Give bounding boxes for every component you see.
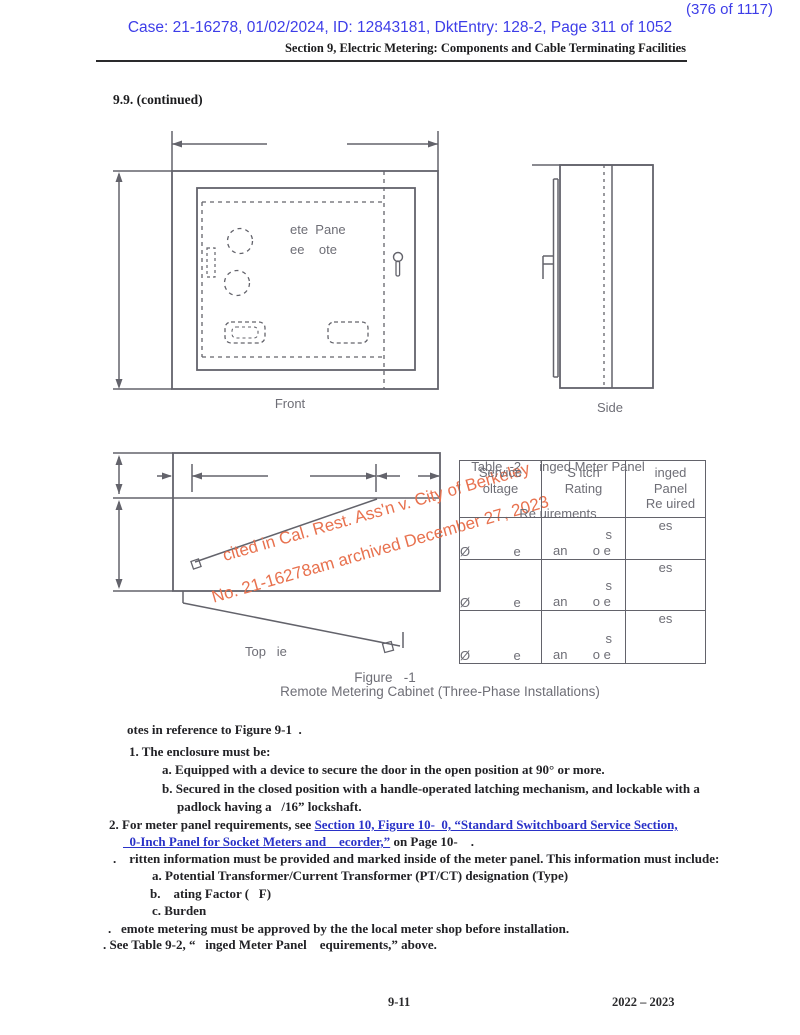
- cell-service-voltage: Ø e: [460, 518, 542, 560]
- note-2: 2. For meter panel requirements, see Sec…: [109, 817, 678, 833]
- cell-switch-rating: s an o e: [542, 518, 626, 560]
- note-4: . emote metering must be approved by the…: [108, 921, 569, 937]
- page-count-stamp: (376 of 1117): [686, 1, 773, 18]
- figure-number: Figure -1: [300, 670, 470, 685]
- table-row: Ø e s an o e es: [460, 611, 706, 664]
- switch-line2: an o e: [542, 647, 625, 663]
- table-header-row: Service oltage S itch Rating inged Panel…: [460, 461, 706, 518]
- figure-caption: Remote Metering Cabinet (Three-Phase Ins…: [180, 684, 700, 699]
- note-3c: c. Burden: [152, 903, 206, 919]
- note-1b-continued: padlock having a /16” lockshaft.: [177, 799, 362, 815]
- section-heading: 9.9. (continued): [113, 92, 203, 108]
- header-rule: [96, 60, 687, 62]
- panel-text-line1: ete Pane: [290, 222, 346, 237]
- header-switch-rating: S itch Rating: [542, 461, 626, 518]
- table-row: Ø e s an o e es: [460, 560, 706, 611]
- switch-line1: s: [542, 527, 625, 543]
- hinged-meter-panel-table: Service oltage S itch Rating inged Panel…: [459, 460, 706, 664]
- note-2-continued: 0-Inch Panel for Socket Meters and ecord…: [123, 834, 474, 850]
- side-view-label: Side: [585, 400, 635, 415]
- document-page: (376 of 1117) Case: 21-16278, 01/02/2024…: [0, 0, 800, 1035]
- note-1: 1. The enclosure must be:: [129, 744, 270, 760]
- front-view-drawing: [96, 128, 466, 418]
- note-2-text: 2. For meter panel requirements, see: [109, 817, 315, 832]
- note-2-suffix: on Page 10- .: [390, 834, 474, 849]
- panel-text-line2: ee ote: [290, 242, 337, 257]
- front-dimension-arrows: [116, 141, 439, 390]
- note-3b: b. ating Factor ( F): [150, 886, 271, 902]
- front-view-label: Front: [252, 396, 328, 411]
- header-service-voltage: Service oltage: [460, 461, 542, 518]
- header-hinged-panel-required: inged Panel Re uired: [626, 461, 706, 518]
- meter-panel-note-text: ete Paneee ote: [290, 220, 346, 260]
- switch-line2: an o e: [542, 543, 625, 559]
- cell-service-voltage: Ø e: [460, 560, 542, 611]
- switch-line1: s: [542, 631, 625, 647]
- section-header: Section 9, Electric Metering: Components…: [285, 41, 686, 56]
- note-5: . See Table 9-2, “ inged Meter Panel equ…: [103, 937, 437, 953]
- notes-intro: otes in reference to Figure 9-1 .: [127, 722, 302, 738]
- switch-line2: an o e: [542, 594, 625, 610]
- cell-service-voltage: Ø e: [460, 611, 542, 664]
- side-view-drawing: [525, 138, 665, 398]
- note-3a: a. Potential Transformer/Current Transfo…: [152, 868, 568, 884]
- note-1a: a. Equipped with a device to secure the …: [162, 762, 605, 778]
- section-10-link-line1[interactable]: Section 10, Figure 10- 0, “Standard Swit…: [315, 817, 678, 832]
- switch-line1: s: [542, 578, 625, 594]
- cell-switch-rating: s an o e: [542, 611, 626, 664]
- cell-hinged-required: es: [626, 518, 706, 560]
- case-caption-stamp: Case: 21-16278, 01/02/2024, ID: 12843181…: [0, 19, 800, 37]
- edition-years: 2022 – 2023: [612, 995, 675, 1010]
- note-1b: b. Secured in the closed position with a…: [162, 781, 700, 797]
- top-view-label: Top ie: [245, 644, 287, 659]
- table-row: Ø e s an o e es: [460, 518, 706, 560]
- section-10-link-line2[interactable]: 0-Inch Panel for Socket Meters and ecord…: [123, 834, 390, 849]
- cell-hinged-required: es: [626, 560, 706, 611]
- note-3: . ritten information must be provided an…: [113, 851, 719, 867]
- cell-hinged-required: es: [626, 611, 706, 664]
- page-number: 9-11: [388, 995, 410, 1010]
- cell-switch-rating: s an o e: [542, 560, 626, 611]
